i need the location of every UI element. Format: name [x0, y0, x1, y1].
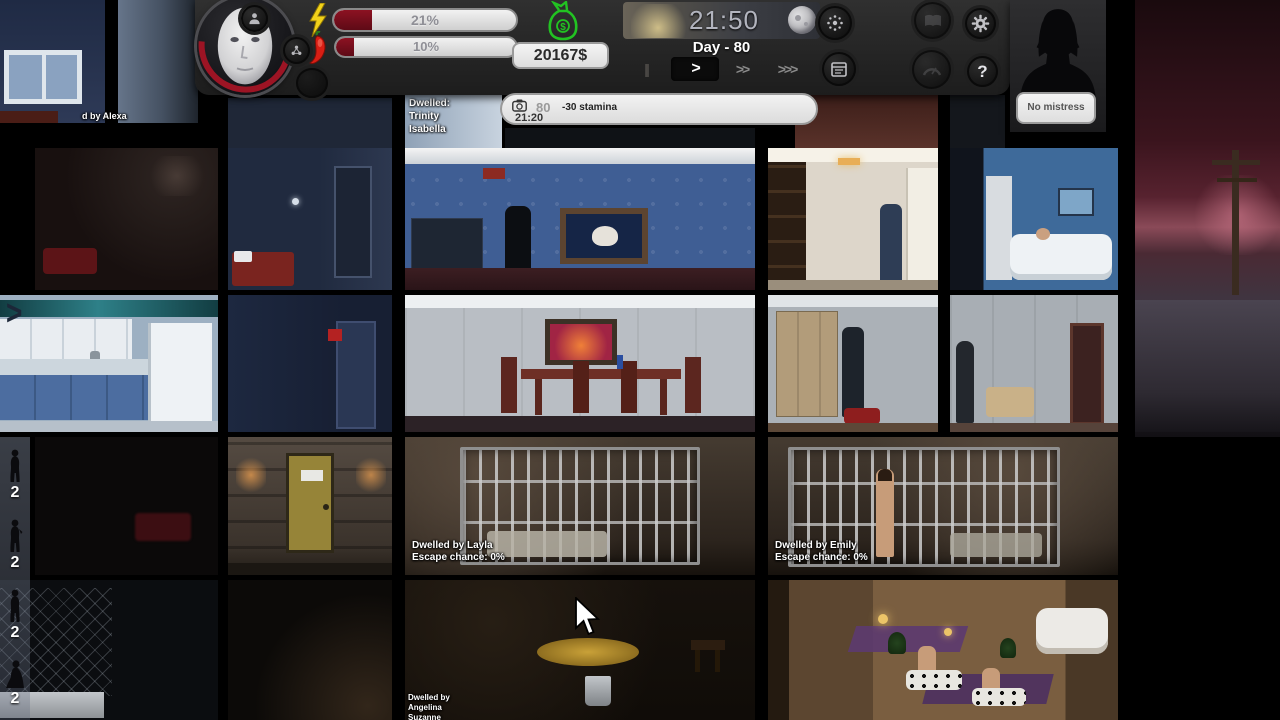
person-icon: [248, 12, 261, 25]
window-divider: [42, 55, 46, 99]
floor: [405, 416, 755, 432]
fridge: [148, 323, 212, 421]
rock-highlight: [145, 156, 209, 196]
room-dungeon-corridor[interactable]: [228, 437, 392, 575]
perks-button[interactable]: [818, 6, 852, 40]
mattress: [487, 531, 607, 557]
speed-controls: || > >> >>>: [623, 57, 809, 81]
top-hud: 21% 10% $ 20167$ 21:50 Day - 80: [195, 0, 1010, 95]
mistress-status: No mistress: [1016, 92, 1096, 124]
game-screen: d by Alexa Dwelled: Trinity Isabella: [0, 0, 1280, 720]
room-yard-fence[interactable]: [0, 580, 218, 720]
dweller-label-layla: Dwelled by Layla Escape chance: 0%: [412, 540, 505, 564]
picture-frame-leopard: [560, 208, 648, 264]
profile-button[interactable]: [241, 5, 268, 32]
chair: [501, 357, 517, 413]
mattress: [950, 533, 1042, 557]
fastest-forward-button[interactable]: >>>: [765, 57, 809, 81]
room-dark-bedroom[interactable]: [228, 148, 392, 290]
floor: [228, 563, 392, 575]
floor: [405, 268, 755, 290]
door: [334, 166, 372, 278]
dweller-label-line: Dwelled by Layla: [412, 540, 505, 552]
room-wardrobe[interactable]: [768, 295, 938, 432]
stool-leg: [715, 650, 720, 672]
wheel-button[interactable]: [296, 68, 328, 98]
dweller-label-line: Dwelled:: [409, 97, 450, 110]
plant: [888, 632, 906, 654]
event-time: 21:20: [515, 112, 543, 124]
room-dark-hall[interactable]: [228, 295, 392, 432]
dweller-label-line: Dwelled by Emily: [775, 540, 868, 552]
chili-icon: [303, 31, 331, 67]
bottle: [617, 355, 623, 369]
settings-button[interactable]: [965, 8, 996, 39]
pillow: [234, 251, 252, 262]
girl-counter-item[interactable]: 2: [6, 449, 24, 502]
ceiling-lamp: [838, 158, 860, 165]
girl-count: 2: [11, 484, 20, 502]
dweller-label-line: Trinity: [409, 110, 450, 123]
captive-person[interactable]: [876, 469, 894, 557]
dweller-label-line: Isabella: [409, 123, 450, 136]
bucket: [585, 676, 611, 706]
hay-pile: [537, 638, 639, 666]
red-couch-dim: [135, 513, 191, 541]
red-sign: [328, 329, 342, 341]
floor: [950, 423, 1118, 432]
girl-count: 2: [11, 554, 20, 572]
bathtub: [1010, 234, 1112, 280]
ceiling: [768, 295, 938, 307]
ottoman: [986, 387, 1034, 417]
picture-frame-sunset: [545, 319, 617, 365]
help-button[interactable]: ?: [967, 56, 998, 87]
power-pole-crossbar: [1217, 178, 1257, 182]
lower-cabinets: [0, 375, 148, 420]
ceiling: [405, 148, 755, 164]
dweller-label-alexa: d by Alexa: [82, 110, 127, 122]
room-panel-hall[interactable]: [950, 295, 1118, 432]
book-icon: [924, 14, 942, 28]
person-silhouette[interactable]: [842, 327, 864, 417]
fan: [956, 341, 974, 423]
girl-silhouette-icon: [4, 659, 26, 689]
wall-panel: [986, 176, 1012, 280]
dweller-label-trinity: Dwelled: Trinity Isabella: [409, 97, 450, 136]
chair: [621, 361, 637, 413]
event-notification-bar[interactable]: 80 -30 stamina 21:20: [500, 93, 818, 125]
molecule-icon: [290, 44, 303, 57]
doorway: [1070, 323, 1104, 425]
lust-bar-value: 10%: [336, 39, 516, 54]
mistress-silhouette-icon: [1010, 2, 1106, 102]
girl-counter-item[interactable]: 2: [6, 519, 24, 572]
girl-silhouette-icon: [6, 449, 24, 483]
dining-table: [521, 369, 681, 379]
table-leg: [535, 379, 542, 415]
journal-button[interactable]: [914, 2, 951, 39]
chair: [685, 357, 701, 413]
calendar-icon: [830, 60, 848, 78]
door-handle: [323, 504, 329, 510]
dweller-label-line: Dwelled by: [408, 693, 450, 703]
girl-counter-item[interactable]: 2: [6, 589, 24, 642]
ceiling: [405, 295, 755, 308]
shelving-dark: [768, 162, 806, 290]
mirror: [1058, 188, 1094, 216]
floor: [768, 280, 938, 290]
faucet: [90, 351, 100, 359]
rays-icon: [826, 14, 844, 32]
money-value: 20167$: [534, 47, 587, 64]
wall-lamp: [292, 198, 299, 205]
door: [336, 321, 376, 429]
girl-silhouette-icon: [6, 519, 24, 553]
girl-count: 2: [11, 624, 20, 642]
time-panel: 21:50: [623, 2, 820, 39]
schedule-button[interactable]: [822, 52, 856, 86]
pause-button[interactable]: ||: [623, 57, 669, 81]
play-button[interactable]: >: [671, 57, 719, 81]
energy-bar: 21%: [332, 8, 518, 32]
roof-ledge: [0, 111, 58, 123]
camera-icon: [512, 99, 527, 112]
lamp-glow: [878, 614, 888, 624]
energy-bar-value: 21%: [334, 12, 516, 28]
dweller-label-angelina: Dwelled by Angelina Suzanne: [408, 693, 450, 720]
clock-display: 21:50: [669, 5, 779, 36]
lust-bar: 10%: [334, 36, 518, 58]
dresser: [411, 218, 483, 270]
day-display: Day - 80: [623, 39, 820, 56]
dweller-label-line: Escape chance: 0%: [775, 552, 868, 564]
door-sign: [301, 470, 323, 481]
girl-counter-sidebar: 2 2 2 2: [0, 437, 30, 720]
question-mark: ?: [977, 62, 987, 82]
dweller-label-line: Escape chance: 0%: [412, 552, 505, 564]
torch-glow: [356, 455, 386, 495]
money-bag-icon: $: [546, 1, 580, 41]
spotted-blanket: [906, 670, 962, 690]
stool: [691, 640, 725, 650]
counter: [0, 359, 148, 375]
mistress-status-label: No mistress: [1027, 102, 1084, 113]
floor: [768, 423, 938, 432]
fast-forward-button[interactable]: >>: [721, 57, 763, 81]
leopard-face: [592, 226, 618, 246]
money-display: 20167$: [512, 42, 609, 69]
cabinet-white: [906, 168, 938, 286]
girl-silhouette-icon: [6, 589, 24, 623]
room-kitchen[interactable]: [0, 295, 218, 432]
person-in-tub[interactable]: [1036, 228, 1050, 240]
room-dark-basement[interactable]: [228, 580, 392, 720]
room-cave[interactable]: [35, 148, 218, 290]
room-top-left-window[interactable]: [0, 0, 105, 123]
mouse-cursor: [575, 597, 601, 637]
room-dark-cellar[interactable]: [35, 437, 218, 575]
dweller-label-line: Angelina: [408, 703, 450, 713]
room-top-dark[interactable]: [228, 98, 392, 148]
lamp-glow: [944, 628, 952, 636]
svg-text:$: $: [560, 22, 566, 33]
air-vent: [483, 168, 505, 179]
stats-button[interactable]: [912, 50, 951, 89]
expand-arrow[interactable]: >: [6, 293, 22, 333]
room-top-ceiling-sliver: [505, 128, 755, 148]
room-bathroom[interactable]: [950, 148, 1118, 290]
outdoor-street-view: [1135, 0, 1280, 437]
red-bag: [844, 408, 880, 424]
room-trinity[interactable]: Dwelled: Trinity Isabella: [405, 95, 502, 148]
dweller-label-line: Suzanne: [408, 713, 450, 720]
chair: [573, 361, 589, 413]
room-main-bedroom[interactable]: [405, 148, 755, 290]
moon-icon: [788, 6, 816, 34]
power-pole-crossbar: [1212, 160, 1260, 165]
dweller-label-emily: Dwelled by Emily Escape chance: 0%: [775, 540, 868, 564]
room-top-right-sliver: [950, 95, 1005, 148]
room-closet-kitchen[interactable]: [768, 148, 938, 290]
table-leg: [660, 379, 667, 415]
plant: [1000, 638, 1016, 658]
gauge-icon: [922, 63, 942, 76]
person-silhouette[interactable]: [880, 204, 902, 284]
room-top-second[interactable]: [118, 0, 198, 123]
stool-leg: [695, 650, 700, 672]
red-couch: [43, 248, 97, 274]
mistress-panel[interactable]: No mistress: [1010, 0, 1106, 132]
dungeon-door[interactable]: [286, 453, 334, 553]
street-wall: [1135, 300, 1280, 432]
floor: [0, 421, 218, 432]
wardrobe: [776, 311, 838, 417]
girl-count: 2: [11, 690, 20, 708]
power-pole: [1232, 150, 1239, 295]
gear-icon: [971, 14, 990, 33]
hair: [878, 469, 892, 481]
torch-glow: [236, 455, 266, 495]
girl-counter-item[interactable]: 2: [4, 659, 26, 708]
room-basement-spa[interactable]: [768, 580, 1118, 720]
moon-crater: [795, 15, 801, 21]
kitchen-window: [0, 300, 218, 317]
moon-crater: [804, 22, 808, 26]
room-dining[interactable]: [405, 295, 755, 432]
event-message: -30 stamina: [562, 102, 617, 113]
bathtub: [1036, 608, 1108, 654]
spotted-blanket: [972, 688, 1026, 706]
